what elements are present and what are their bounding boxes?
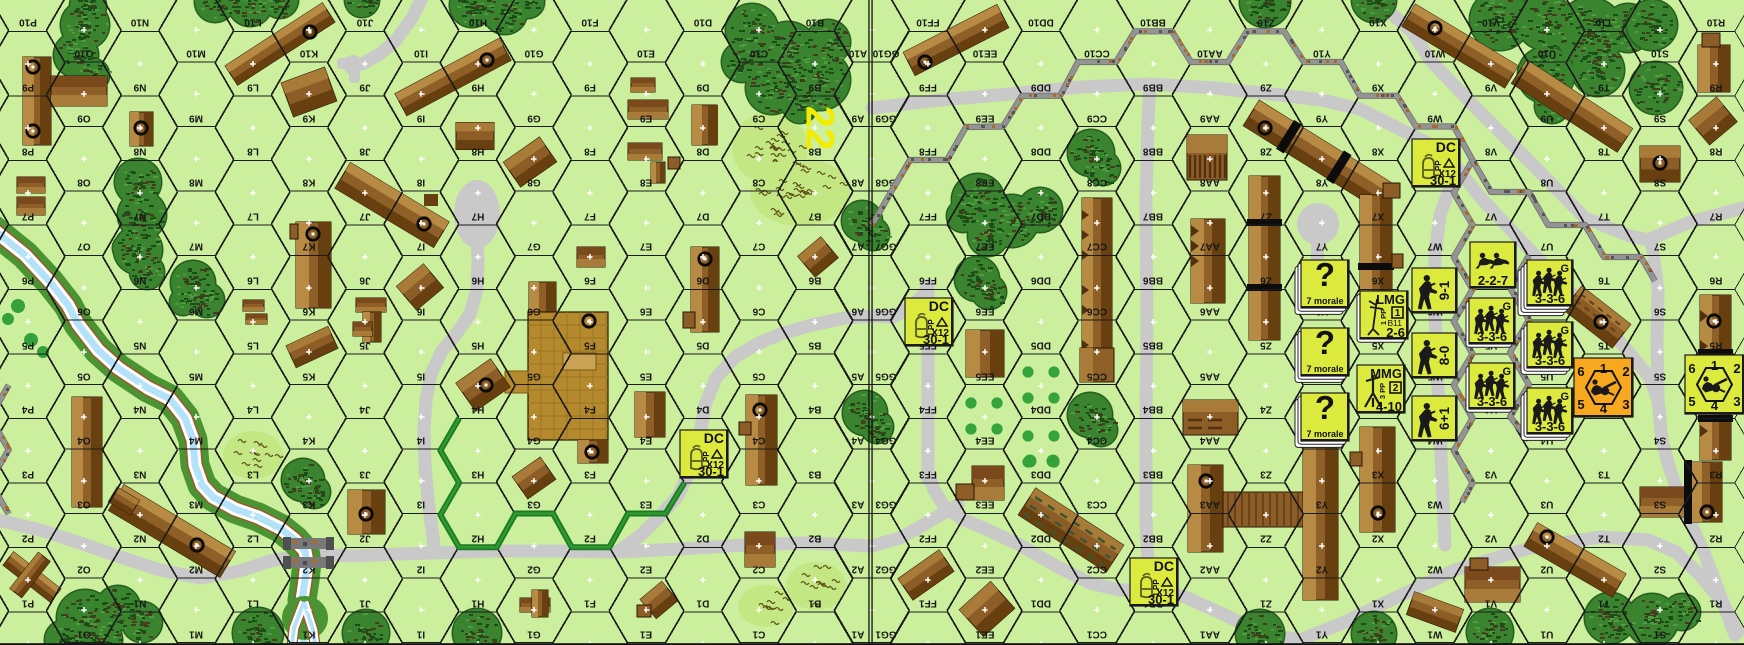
svg-text:CC5: CC5 <box>1087 370 1107 381</box>
svg-text:FF7: FF7 <box>919 210 937 221</box>
svg-text:C3: C3 <box>752 498 765 509</box>
svg-text:I5: I5 <box>416 370 425 381</box>
svg-text:GG6: GG6 <box>875 305 897 316</box>
svg-text:C8: C8 <box>752 176 765 187</box>
svg-text:C9: C9 <box>752 112 765 123</box>
svg-text:6: 6 <box>1577 364 1584 379</box>
svg-text:B5: B5 <box>808 339 821 350</box>
svg-text:N5: N5 <box>133 339 146 350</box>
svg-text:L4: L4 <box>247 403 259 414</box>
svg-text:F5: F5 <box>584 339 596 350</box>
svg-text:F1: F1 <box>584 597 596 608</box>
svg-text:22: 22 <box>797 106 841 151</box>
svg-text:U9: U9 <box>1540 112 1553 123</box>
svg-text:C2: C2 <box>752 563 765 574</box>
svg-text:6+1: 6+1 <box>1437 407 1452 430</box>
svg-text:CC8: CC8 <box>1087 176 1107 187</box>
svg-text:G6: G6 <box>527 305 541 316</box>
svg-text:A7: A7 <box>851 240 864 251</box>
svg-text:M2: M2 <box>189 563 203 574</box>
svg-text:BB6: BB6 <box>1143 274 1163 285</box>
svg-text:N7: N7 <box>133 210 146 221</box>
svg-text:1: 1 <box>1600 361 1607 376</box>
svg-text:H4: H4 <box>471 403 484 414</box>
svg-text:T3: T3 <box>1598 468 1610 479</box>
svg-text:W2: W2 <box>1427 563 1442 574</box>
svg-text:P1: P1 <box>21 597 34 608</box>
svg-text:S7: S7 <box>1653 240 1666 251</box>
svg-text:?: ? <box>1315 389 1335 426</box>
svg-text:N4: N4 <box>133 403 146 414</box>
svg-text:A3: A3 <box>851 498 864 509</box>
svg-text:L5: L5 <box>247 339 259 350</box>
svg-text:O6: O6 <box>77 305 91 316</box>
svg-text:X3: X3 <box>1371 468 1384 479</box>
svg-text:CC6: CC6 <box>1087 305 1107 316</box>
svg-text:R10: R10 <box>1706 16 1725 27</box>
svg-text:EE5: EE5 <box>975 370 994 381</box>
svg-text:S2: S2 <box>1653 563 1666 574</box>
svg-text:V1: V1 <box>1484 597 1497 608</box>
svg-text:I4: I4 <box>416 434 425 445</box>
svg-text:U7: U7 <box>1540 240 1553 251</box>
svg-text:K5: K5 <box>302 370 315 381</box>
svg-text:E4: E4 <box>639 434 652 445</box>
svg-text:I3: I3 <box>416 498 425 509</box>
svg-text:B9: B9 <box>808 81 821 92</box>
svg-text:DD10: DD10 <box>1028 16 1054 27</box>
svg-text:R2: R2 <box>1709 532 1722 543</box>
svg-text:G9: G9 <box>527 112 541 123</box>
svg-text:DC: DC <box>929 298 949 314</box>
svg-text:W9: W9 <box>1427 112 1442 123</box>
svg-text:J1: J1 <box>359 597 371 608</box>
svg-text:N6: N6 <box>133 274 146 285</box>
svg-text:3: 3 <box>1733 394 1740 409</box>
svg-text:Y1: Y1 <box>1315 628 1328 639</box>
svg-text:C4: C4 <box>752 434 765 445</box>
svg-text:C1: C1 <box>752 628 765 639</box>
svg-text:F7: F7 <box>584 210 596 221</box>
svg-text:E5: E5 <box>639 370 652 381</box>
svg-text:2: 2 <box>1733 361 1740 376</box>
svg-text:J7: J7 <box>359 210 371 221</box>
svg-text:H2: H2 <box>471 532 484 543</box>
svg-text:W3: W3 <box>1427 498 1442 509</box>
svg-text:A2: A2 <box>851 563 864 574</box>
svg-text:X9: X9 <box>1371 81 1384 92</box>
svg-text:AA8: AA8 <box>1200 176 1220 187</box>
svg-text:Y9: Y9 <box>1315 112 1328 123</box>
svg-text:AA5: AA5 <box>1200 370 1220 381</box>
svg-text:GG9: GG9 <box>875 112 897 123</box>
svg-text:G10: G10 <box>524 47 543 58</box>
svg-text:BB5: BB5 <box>1143 339 1163 350</box>
svg-text:W7: W7 <box>1427 240 1442 251</box>
svg-text:2-2-7: 2-2-7 <box>1478 273 1508 288</box>
svg-text:30-1: 30-1 <box>1148 592 1174 607</box>
svg-text:R7: R7 <box>1709 210 1722 221</box>
svg-text:O5: O5 <box>77 370 91 381</box>
svg-text:4: 4 <box>1711 398 1719 413</box>
svg-text:J8: J8 <box>359 145 371 156</box>
svg-text:P10: P10 <box>19 16 37 27</box>
svg-text:P7: P7 <box>21 210 34 221</box>
svg-text:AA10: AA10 <box>1197 47 1223 58</box>
svg-text:3-3-6: 3-3-6 <box>1535 353 1565 368</box>
svg-text:H3: H3 <box>471 468 484 479</box>
svg-text:S3: S3 <box>1653 498 1666 509</box>
svg-text:EE2: EE2 <box>975 563 994 574</box>
svg-text:H6: H6 <box>471 274 484 285</box>
svg-text:CC1: CC1 <box>1087 628 1107 639</box>
svg-text:O10: O10 <box>74 47 93 58</box>
svg-text:N1: N1 <box>133 597 146 608</box>
svg-text:BB9: BB9 <box>1143 81 1163 92</box>
svg-text:LMG: LMG <box>1376 292 1405 307</box>
svg-text:DD2: DD2 <box>1031 532 1051 543</box>
svg-text:Z7: Z7 <box>1260 210 1272 221</box>
svg-text:CC2: CC2 <box>1087 563 1107 574</box>
svg-text:U8: U8 <box>1540 176 1553 187</box>
svg-text:P4: P4 <box>21 403 34 414</box>
svg-text:30-1: 30-1 <box>923 332 949 347</box>
svg-text:P8: P8 <box>21 145 34 156</box>
svg-text:T1: T1 <box>1598 597 1610 608</box>
svg-text:9-1: 9-1 <box>1437 280 1452 300</box>
svg-text:A6: A6 <box>851 305 864 316</box>
svg-text:I1: I1 <box>416 628 425 639</box>
svg-text:X2: X2 <box>1371 532 1384 543</box>
svg-text:CC9: CC9 <box>1087 112 1107 123</box>
svg-text:GG10: GG10 <box>872 47 899 58</box>
svg-text:R6: R6 <box>1709 274 1722 285</box>
svg-text:L7: L7 <box>247 210 259 221</box>
svg-text:B4: B4 <box>808 403 821 414</box>
svg-text:GG4: GG4 <box>875 434 897 445</box>
svg-text:M4: M4 <box>189 434 203 445</box>
svg-text:2: 2 <box>1393 383 1399 394</box>
svg-text:O2: O2 <box>77 563 91 574</box>
svg-text:EE6: EE6 <box>975 305 994 316</box>
svg-text:GG7: GG7 <box>875 240 897 251</box>
svg-text:O7: O7 <box>77 240 91 251</box>
svg-text:7 morale: 7 morale <box>1306 296 1343 306</box>
svg-text:3-3-6: 3-3-6 <box>1535 291 1565 306</box>
svg-text:AA3: AA3 <box>1200 498 1220 509</box>
svg-text:GG5: GG5 <box>875 370 897 381</box>
svg-text:J3: J3 <box>359 468 371 479</box>
svg-text:N3: N3 <box>133 468 146 479</box>
svg-text:4-10: 4-10 <box>1376 399 1402 414</box>
svg-text:W10: W10 <box>1424 47 1445 58</box>
svg-text:CC7: CC7 <box>1087 240 1107 251</box>
svg-text:GG2: GG2 <box>875 563 897 574</box>
svg-text:FF4: FF4 <box>919 403 937 414</box>
svg-text:C7: C7 <box>752 240 765 251</box>
svg-text:T10: T10 <box>1595 16 1613 27</box>
svg-text:2: 2 <box>1622 364 1629 379</box>
svg-text:AA2: AA2 <box>1200 563 1220 574</box>
svg-text:Z10: Z10 <box>1257 16 1275 27</box>
svg-text:H8: H8 <box>471 145 484 156</box>
svg-text:G2: G2 <box>527 563 541 574</box>
svg-text:I8: I8 <box>416 176 425 187</box>
svg-text:B1: B1 <box>808 597 821 608</box>
svg-text:G8: G8 <box>527 176 541 187</box>
svg-text:G4: G4 <box>527 434 541 445</box>
svg-text:O3: O3 <box>77 498 91 509</box>
svg-text:W1: W1 <box>1427 628 1442 639</box>
svg-text:S5: S5 <box>1653 370 1666 381</box>
svg-text:30-1: 30-1 <box>698 464 724 479</box>
svg-text:Y3: Y3 <box>1315 498 1328 509</box>
svg-text:FF1: FF1 <box>919 597 937 608</box>
svg-text:D9: D9 <box>696 81 709 92</box>
svg-text:U1: U1 <box>1540 628 1553 639</box>
svg-text:BB2: BB2 <box>1143 532 1163 543</box>
svg-text:N8: N8 <box>133 145 146 156</box>
svg-text:FF9: FF9 <box>919 81 937 92</box>
svg-text:BB3: BB3 <box>1143 468 1163 479</box>
svg-text:I6: I6 <box>416 305 425 316</box>
svg-text:B10: B10 <box>805 16 824 27</box>
svg-text:T5: T5 <box>1598 339 1610 350</box>
svg-text:U3: U3 <box>1540 498 1553 509</box>
svg-text:R1: R1 <box>1709 597 1722 608</box>
svg-text:Z6: Z6 <box>1260 274 1272 285</box>
svg-text:X7: X7 <box>1371 210 1384 221</box>
svg-text:F9: F9 <box>584 81 596 92</box>
svg-text:30-1: 30-1 <box>1430 173 1456 188</box>
svg-text:C10: C10 <box>749 47 768 58</box>
svg-text:E3: E3 <box>639 498 652 509</box>
svg-text:V8: V8 <box>1484 145 1497 156</box>
svg-text:H10: H10 <box>468 16 487 27</box>
svg-text:GG1: GG1 <box>875 628 897 639</box>
svg-text:C6: C6 <box>752 305 765 316</box>
svg-text:K9: K9 <box>302 112 315 123</box>
svg-text:L6: L6 <box>247 274 259 285</box>
svg-text:1: 1 <box>1711 358 1718 373</box>
svg-text:8-0: 8-0 <box>1437 346 1452 366</box>
svg-text:D10: D10 <box>693 16 712 27</box>
svg-text:3: 3 <box>1622 397 1629 412</box>
svg-text:I7: I7 <box>416 240 425 251</box>
svg-text:L9: L9 <box>247 81 259 92</box>
svg-text:DD8: DD8 <box>1031 145 1051 156</box>
svg-text:R5: R5 <box>1709 339 1722 350</box>
svg-text:Z3: Z3 <box>1260 468 1272 479</box>
svg-text:T2: T2 <box>1598 532 1610 543</box>
svg-text:5: 5 <box>1688 394 1695 409</box>
svg-text:T6: T6 <box>1598 274 1610 285</box>
svg-text:X8: X8 <box>1371 145 1384 156</box>
svg-text:T7: T7 <box>1598 210 1610 221</box>
svg-text:H9: H9 <box>471 81 484 92</box>
svg-text:DD9: DD9 <box>1031 81 1051 92</box>
svg-text:E7: E7 <box>639 240 652 251</box>
svg-text:EE10: EE10 <box>972 47 997 58</box>
svg-text:N9: N9 <box>133 81 146 92</box>
svg-text:FF8: FF8 <box>919 145 937 156</box>
svg-text:DD3: DD3 <box>1031 468 1051 479</box>
svg-text:3 PP: 3 PP <box>1378 383 1387 399</box>
svg-text:Z1: Z1 <box>1260 597 1272 608</box>
svg-text:H1: H1 <box>471 597 484 608</box>
svg-text:M8: M8 <box>189 176 203 187</box>
svg-text:3-3-6: 3-3-6 <box>1477 329 1507 344</box>
svg-text:D5: D5 <box>696 339 709 350</box>
svg-text:F3: F3 <box>584 468 596 479</box>
svg-text:BB10: BB10 <box>1140 16 1166 27</box>
svg-text:AA9: AA9 <box>1200 112 1220 123</box>
svg-text:R8: R8 <box>1709 145 1722 156</box>
svg-text:FF2: FF2 <box>919 532 937 543</box>
svg-text:EE3: EE3 <box>975 498 994 509</box>
svg-text:G1: G1 <box>527 628 541 639</box>
svg-text:K4: K4 <box>302 434 315 445</box>
svg-text:4: 4 <box>1600 401 1608 416</box>
svg-text:CC10: CC10 <box>1084 47 1110 58</box>
svg-text:R9: R9 <box>1709 81 1722 92</box>
svg-text:?: ? <box>1315 256 1335 293</box>
svg-text:M10: M10 <box>186 47 206 58</box>
svg-text:Z8: Z8 <box>1260 145 1272 156</box>
svg-text:Y10: Y10 <box>1313 47 1331 58</box>
svg-text:7 morale: 7 morale <box>1306 429 1343 439</box>
svg-text:A5: A5 <box>851 370 864 381</box>
svg-text:L8: L8 <box>247 145 259 156</box>
svg-text:M9: M9 <box>189 112 203 123</box>
svg-text:K10: K10 <box>299 47 318 58</box>
svg-text:C5: C5 <box>752 370 765 381</box>
svg-text:K3: K3 <box>302 498 315 509</box>
svg-text:EE7: EE7 <box>975 240 994 251</box>
svg-text:F8: F8 <box>584 145 596 156</box>
svg-text:AA4: AA4 <box>1200 434 1220 445</box>
svg-text:FF6: FF6 <box>919 274 937 285</box>
svg-text:A4: A4 <box>851 434 864 445</box>
svg-text:BB4: BB4 <box>1143 403 1163 414</box>
svg-text:V10: V10 <box>1482 16 1500 27</box>
svg-text:J4: J4 <box>359 403 371 414</box>
svg-text:AA7: AA7 <box>1200 240 1220 251</box>
svg-text:J6: J6 <box>359 274 371 285</box>
svg-text:D1: D1 <box>696 597 709 608</box>
svg-text:3-3-6: 3-3-6 <box>1477 394 1507 409</box>
svg-text:EE9: EE9 <box>975 112 994 123</box>
svg-text:DD1: DD1 <box>1031 597 1051 608</box>
svg-text:L3: L3 <box>247 468 259 479</box>
svg-text:P5: P5 <box>21 339 34 350</box>
svg-text:G5: G5 <box>527 370 541 381</box>
svg-text:N2: N2 <box>133 532 146 543</box>
svg-text:EE1: EE1 <box>975 628 994 639</box>
svg-text:DC: DC <box>1436 139 1456 155</box>
svg-text:Z4: Z4 <box>1260 403 1272 414</box>
svg-text:GG3: GG3 <box>875 498 897 509</box>
svg-text:I10: I10 <box>414 47 428 58</box>
svg-text:7 morale: 7 morale <box>1306 364 1343 374</box>
svg-text:X10: X10 <box>1369 16 1387 27</box>
svg-text:EE4: EE4 <box>975 434 994 445</box>
svg-text:K7: K7 <box>302 240 315 251</box>
svg-text:P6: P6 <box>21 274 34 285</box>
svg-text:P9: P9 <box>21 81 34 92</box>
svg-text:S10: S10 <box>1651 47 1669 58</box>
svg-text:B6: B6 <box>808 274 821 285</box>
svg-text:Z5: Z5 <box>1260 339 1272 350</box>
svg-text:V2: V2 <box>1484 532 1497 543</box>
svg-text:N10: N10 <box>130 16 149 27</box>
svg-text:S4: S4 <box>1653 434 1666 445</box>
svg-text:B3: B3 <box>808 468 821 479</box>
svg-text:O8: O8 <box>77 176 91 187</box>
svg-text:J9: J9 <box>359 81 371 92</box>
svg-text:BB7: BB7 <box>1143 210 1163 221</box>
svg-text:F2: F2 <box>584 532 596 543</box>
svg-text:E9: E9 <box>639 112 652 123</box>
svg-text:BB8: BB8 <box>1143 145 1163 156</box>
svg-text:B2: B2 <box>808 532 821 543</box>
svg-text:F6: F6 <box>584 274 596 285</box>
svg-text:E6: E6 <box>639 305 652 316</box>
svg-text:G7: G7 <box>527 240 541 251</box>
svg-text:D6: D6 <box>696 274 709 285</box>
svg-text:A9: A9 <box>851 112 864 123</box>
svg-text:A1: A1 <box>851 628 864 639</box>
svg-text:G3: G3 <box>527 498 541 509</box>
svg-text:O1: O1 <box>77 628 91 639</box>
svg-text:J2: J2 <box>359 532 371 543</box>
svg-text:X6: X6 <box>1371 274 1384 285</box>
svg-text:M5: M5 <box>189 370 203 381</box>
svg-text:DD7: DD7 <box>1031 210 1051 221</box>
svg-text:EE8: EE8 <box>975 176 994 187</box>
svg-text:B7: B7 <box>808 210 821 221</box>
svg-text:6: 6 <box>1688 361 1695 376</box>
svg-text:O9: O9 <box>77 112 91 123</box>
svg-text:V9: V9 <box>1484 81 1497 92</box>
svg-text:I2: I2 <box>416 563 425 574</box>
svg-text:Z9: Z9 <box>1260 81 1272 92</box>
svg-text:Y7: Y7 <box>1315 240 1328 251</box>
svg-text:S6: S6 <box>1653 305 1666 316</box>
svg-text:U10: U10 <box>1537 47 1556 58</box>
svg-text:I9: I9 <box>416 112 425 123</box>
svg-text:AA1: AA1 <box>1200 628 1220 639</box>
svg-text:V3: V3 <box>1484 468 1497 479</box>
svg-text:L1: L1 <box>247 597 259 608</box>
svg-text:T8: T8 <box>1598 145 1610 156</box>
svg-text:CC4: CC4 <box>1087 434 1107 445</box>
svg-text:D8: D8 <box>696 145 709 156</box>
svg-text:A8: A8 <box>851 176 864 187</box>
svg-text:?: ? <box>1315 324 1335 361</box>
svg-text:5: 5 <box>1577 397 1584 412</box>
svg-text:L10: L10 <box>244 16 262 27</box>
svg-text:DD4: DD4 <box>1031 403 1051 414</box>
svg-text:O4: O4 <box>77 434 91 445</box>
svg-text:S8: S8 <box>1653 176 1666 187</box>
svg-text:D2: D2 <box>696 532 709 543</box>
svg-text:J10: J10 <box>356 16 373 27</box>
svg-text:H5: H5 <box>471 339 484 350</box>
svg-text:E2: E2 <box>639 563 652 574</box>
svg-text:E10: E10 <box>637 47 655 58</box>
svg-text:M7: M7 <box>189 240 203 251</box>
